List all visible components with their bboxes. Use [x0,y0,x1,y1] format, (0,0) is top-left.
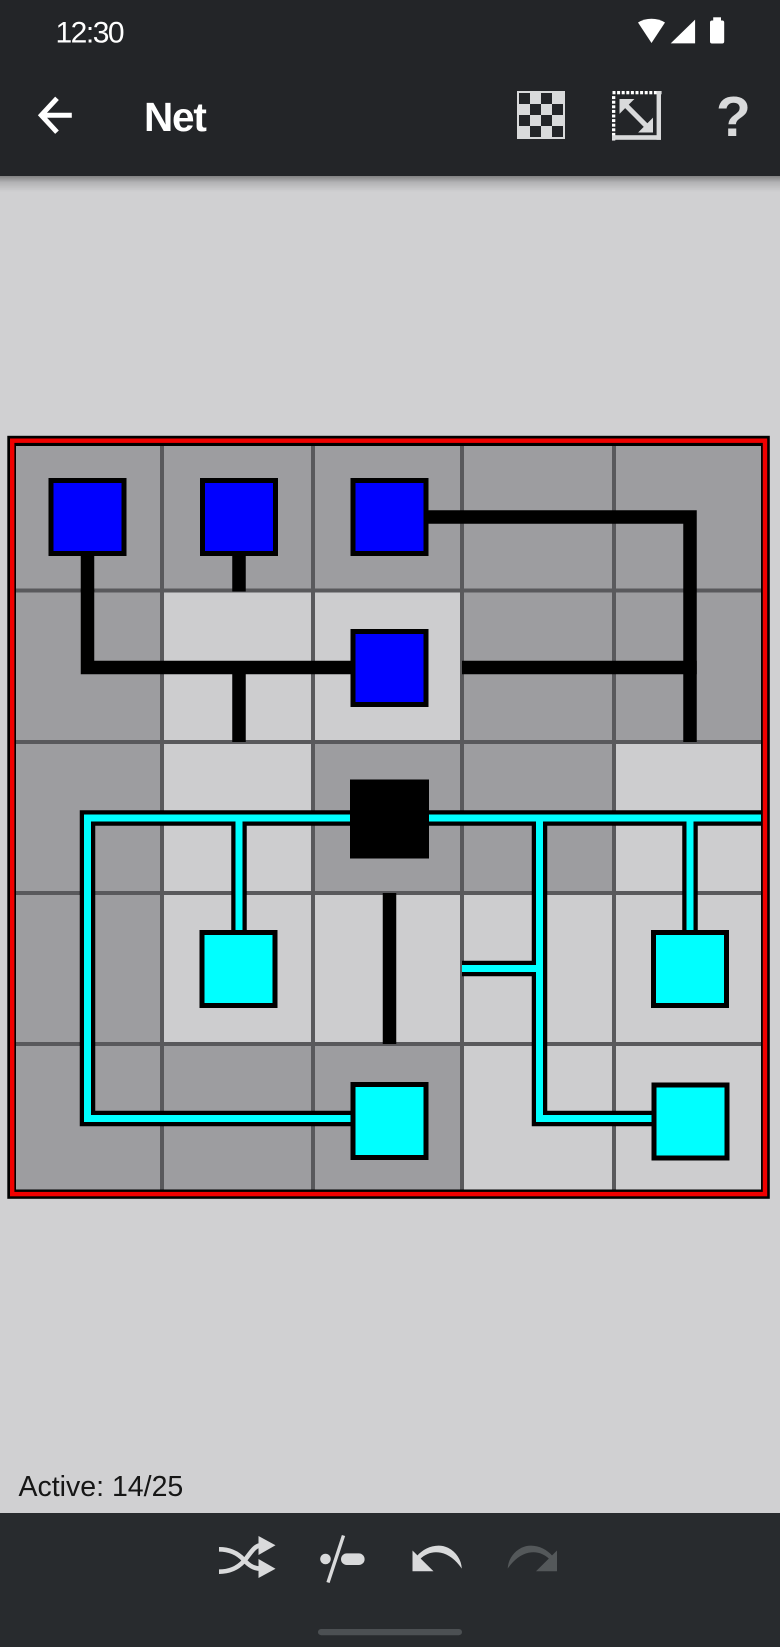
svg-text:Active: 14/25: Active: 14/25 [19,1471,184,1503]
svg-text:Net: Net [144,94,206,140]
svg-text:?: ? [716,85,751,149]
svg-text:12:30: 12:30 [56,17,124,50]
